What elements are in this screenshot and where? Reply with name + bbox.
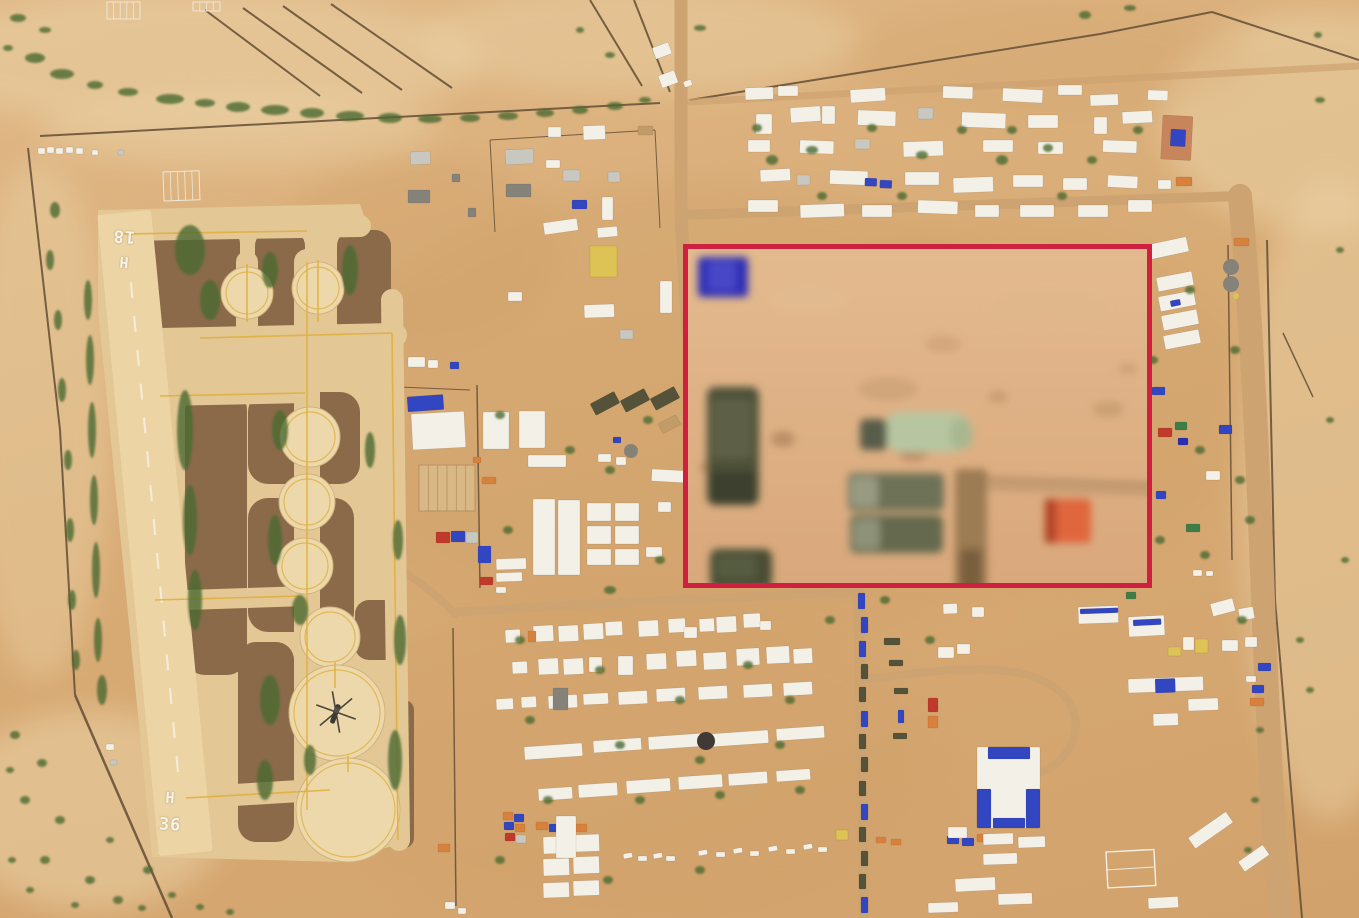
military-truck-a <box>848 473 944 511</box>
military-truck-b <box>850 515 943 553</box>
runway-marking-north-h: H <box>104 253 145 271</box>
zoom-inset <box>683 244 1152 588</box>
trailer-structure <box>955 469 987 583</box>
runway-marking-18: 18 <box>103 226 144 246</box>
zoom-inset-image <box>688 249 1147 583</box>
satellite-image: 18 H H 36 <box>0 0 1359 918</box>
base-map <box>0 0 1359 918</box>
blue-container-truck <box>698 257 748 297</box>
runway-marking-south-h: H <box>150 790 191 808</box>
military-truck-left <box>707 387 759 505</box>
orange-tarp-structure <box>1045 499 1091 543</box>
runway-marking-36: 36 <box>149 816 190 836</box>
helipad-runway-complex <box>97 204 414 862</box>
military-truck-bottom-left <box>710 549 772 583</box>
